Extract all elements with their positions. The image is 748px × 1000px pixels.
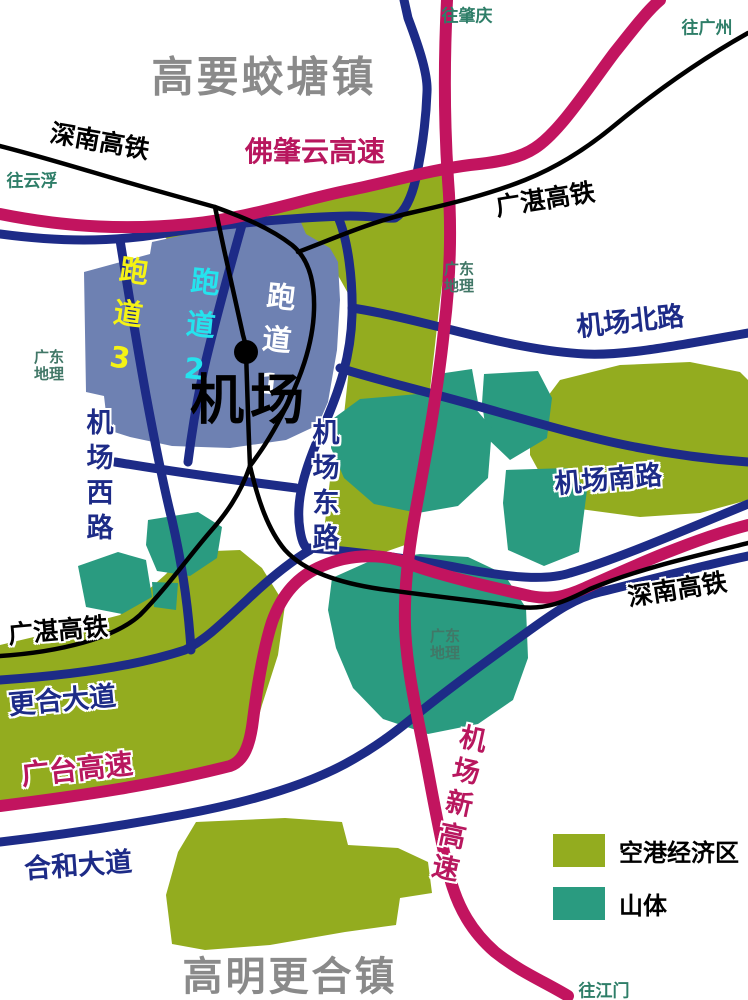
legend-swatch-economic-zone	[553, 834, 605, 867]
watermark-line1: 广东	[444, 260, 474, 278]
airport-name-label: 机场	[190, 356, 310, 435]
legend-item-economic-zone: 空港经济区	[553, 833, 739, 868]
road-label-airport-east: 机场东路	[304, 418, 343, 558]
legend-item-mountain: 山体	[553, 886, 667, 921]
expressway-label-fozhaoyun: 佛肇云高速	[245, 130, 385, 170]
town-label-gaoyao-jiaotang: 高要蛟塘镇	[151, 44, 376, 105]
watermark-guangdong-geography: 广东地理	[444, 261, 474, 296]
watermark-line2: 地理	[430, 644, 460, 662]
map: 高要蛟塘镇 高明更合镇 深南高铁 广湛高铁 广湛高铁 深南高铁 佛肇云高速 广台…	[0, 0, 748, 1000]
legend-label-mountain: 山体	[619, 886, 667, 921]
economic-zone-south	[166, 818, 432, 950]
watermark-line2: 地理	[34, 365, 64, 383]
road-label-hehe-avenue: 合和大道	[23, 840, 133, 886]
road-airport-south-edge	[115, 462, 296, 488]
watermark-guangdong-geography: 广东地理	[34, 349, 64, 384]
watermark-line1: 广东	[430, 627, 460, 645]
watermark-guangdong-geography: 广东地理	[430, 628, 460, 663]
direction-label-zhaoqing: 往肇庆	[442, 2, 493, 27]
town-label-gaoming-genghe: 高明更合镇	[183, 944, 398, 1000]
legend-label-economic-zone: 空港经济区	[619, 833, 739, 868]
direction-label-jiangmen: 往江门	[579, 977, 630, 1000]
direction-label-guangzhou: 往广州	[682, 14, 733, 39]
watermark-line2: 地理	[444, 277, 474, 295]
legend-swatch-mountain	[553, 887, 605, 920]
road-label-airport-west: 机场西路	[78, 408, 117, 548]
direction-label-yunfu: 往云浮	[7, 167, 58, 192]
watermark-line1: 广东	[34, 348, 64, 366]
